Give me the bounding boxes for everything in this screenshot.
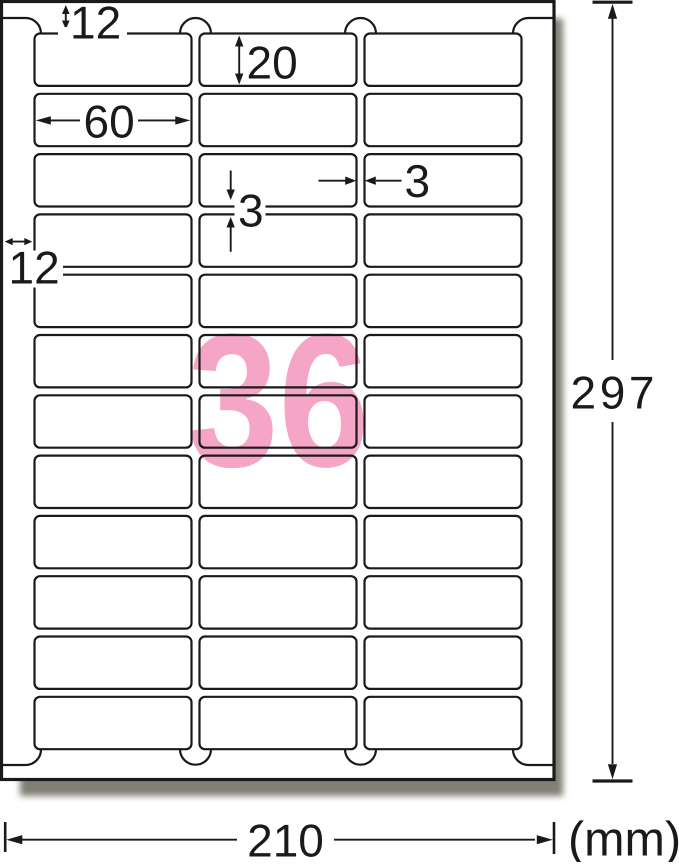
svg-text:(mm): (mm) xyxy=(568,813,679,863)
svg-text:3: 3 xyxy=(238,185,264,237)
svg-text:12: 12 xyxy=(70,0,121,49)
svg-text:210: 210 xyxy=(247,815,324,863)
svg-text:20: 20 xyxy=(247,37,298,89)
svg-text:60: 60 xyxy=(84,96,135,148)
svg-text:12: 12 xyxy=(9,242,60,294)
svg-text:3: 3 xyxy=(405,155,431,207)
svg-text:297: 297 xyxy=(571,367,655,419)
